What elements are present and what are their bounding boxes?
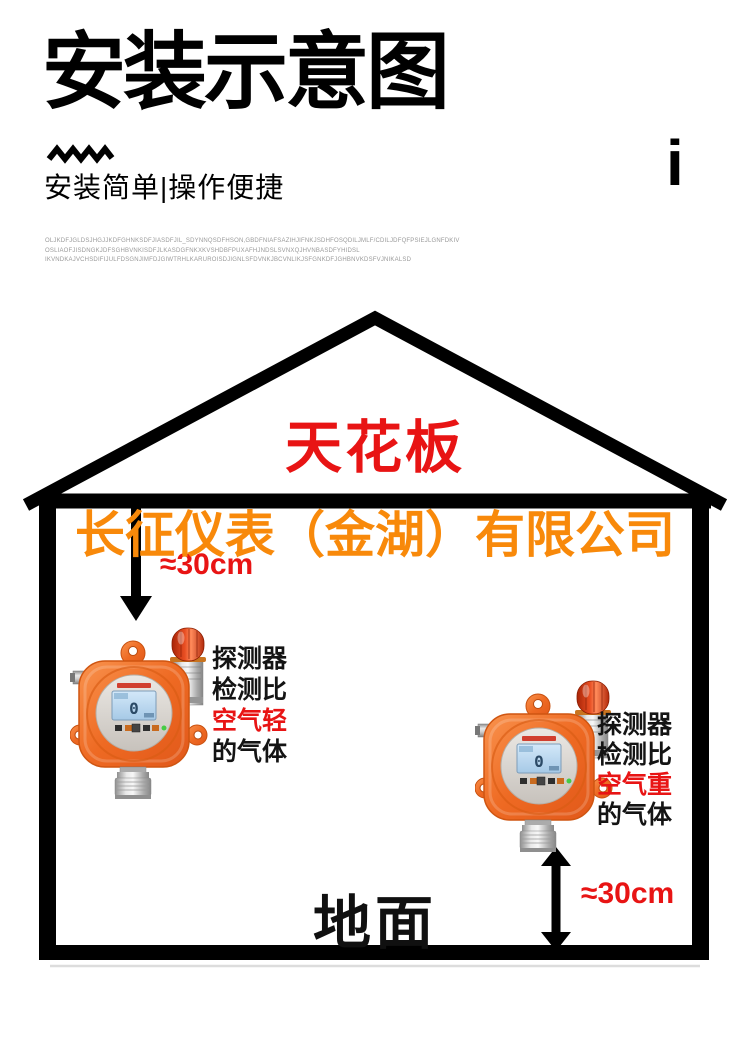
installation-diagram-page: { "header": { "title": "安装示意图", "tagline… (0, 0, 750, 1044)
caption-line: 的气体 (212, 737, 287, 768)
gas-detector-ceiling (70, 625, 210, 800)
caption-line: 检测比 (212, 675, 287, 706)
caption-line-highlight: 空气轻 (212, 706, 287, 737)
floor-label: 地面 (0, 876, 750, 960)
gas-detector-floor (475, 678, 615, 853)
caption-line: 探测器 (212, 644, 287, 675)
caption-line: 的气体 (597, 800, 672, 830)
caption-heavier-gas: 探测器 检测比 空气重 的气体 (597, 710, 672, 830)
caption-line: 检测比 (597, 740, 672, 770)
ceiling-label: 天花板 (0, 402, 750, 484)
caption-lighter-gas: 探测器 检测比 空气轻 的气体 (212, 644, 287, 768)
caption-line-highlight: 空气重 (597, 770, 672, 800)
company-watermark: 长征仪表（金湖）有限公司 (0, 495, 750, 567)
caption-line: 探测器 (597, 710, 672, 740)
